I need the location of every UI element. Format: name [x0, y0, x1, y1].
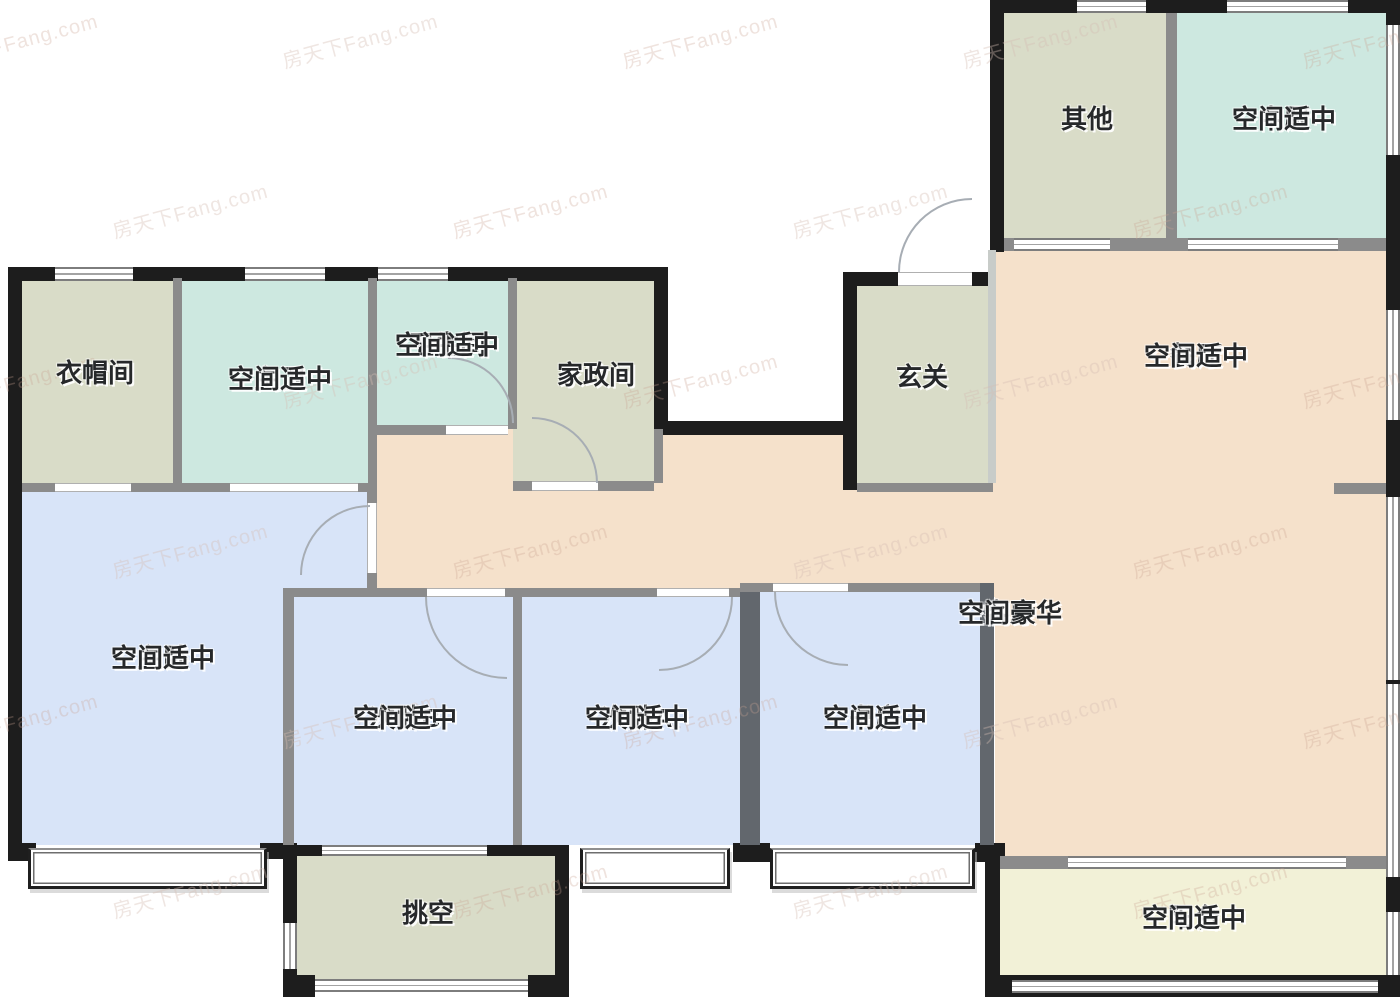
door-opening — [55, 483, 131, 492]
wall — [487, 845, 555, 856]
watermark-text: 房天下Fang.com — [0, 5, 101, 74]
wall — [733, 843, 770, 862]
wall — [173, 278, 182, 485]
wall — [513, 588, 522, 845]
window — [1188, 238, 1338, 251]
window — [378, 267, 448, 281]
window — [1386, 912, 1400, 975]
watermark-text: 房天下Fang.com — [449, 175, 611, 244]
window — [1386, 497, 1400, 680]
window — [1386, 684, 1400, 877]
window — [1077, 0, 1146, 13]
wall — [1166, 13, 1177, 240]
wall — [857, 483, 993, 492]
watermark-text: 房天下Fang.com — [279, 5, 441, 74]
door-opening — [657, 588, 729, 597]
room-note: 空间适中 — [228, 364, 332, 394]
door-opening — [773, 583, 848, 592]
window — [1386, 310, 1400, 420]
wall — [555, 845, 569, 997]
window — [55, 267, 133, 281]
door-opening — [230, 483, 358, 492]
door-opening — [446, 425, 508, 435]
room-name: 其他 — [1061, 104, 1113, 134]
wall — [654, 429, 663, 483]
room-name: 家政间 — [557, 360, 635, 390]
wall — [283, 975, 315, 997]
window — [1227, 0, 1348, 13]
room-note: 空间适中 — [353, 703, 457, 733]
wall — [283, 845, 297, 925]
wall — [368, 278, 377, 490]
room-note: 空间适中 — [585, 703, 689, 733]
wall — [1334, 483, 1386, 494]
room-name: 玄关 — [896, 362, 948, 392]
room-name: 挑空 — [402, 898, 454, 928]
window — [315, 979, 528, 992]
room-note: 空间适中 — [111, 643, 215, 673]
wall — [8, 267, 22, 861]
window — [1014, 238, 1110, 251]
bay-window — [770, 848, 975, 889]
window — [322, 845, 487, 856]
room-note: 空间适中 — [395, 330, 499, 360]
room-name: 衣帽间 — [56, 358, 134, 388]
watermark-text: 房天下Fang.com — [619, 5, 781, 74]
room-note: 空间豪华 — [958, 598, 1062, 628]
wall — [654, 421, 857, 435]
wall — [843, 272, 857, 490]
wall — [654, 267, 668, 429]
watermark-text: 房天下Fang.com — [109, 175, 271, 244]
wall — [283, 588, 294, 845]
bay-window — [580, 848, 730, 889]
room-note: 空间适中 — [1232, 104, 1336, 134]
wall — [990, 0, 1004, 252]
room-note: 空间适中 — [823, 703, 927, 733]
window — [283, 923, 297, 969]
wall — [988, 250, 996, 483]
window — [245, 267, 325, 281]
door-opening — [427, 588, 505, 597]
window — [1068, 856, 1346, 869]
room-note: 空间适中 — [1144, 341, 1248, 371]
floorplan: 其他 中厨 空间适中 衣帽间 主卫 空间适中 卫生间 空间适中 家政间 玄关 餐… — [0, 0, 1400, 997]
window — [1012, 980, 1378, 993]
wall — [297, 845, 322, 856]
door-arc-entry — [898, 198, 972, 272]
room-note: 空间适中 — [1142, 903, 1246, 933]
door-opening — [898, 272, 972, 286]
window — [1386, 25, 1400, 155]
wall — [740, 583, 760, 845]
bay-window — [28, 848, 267, 889]
